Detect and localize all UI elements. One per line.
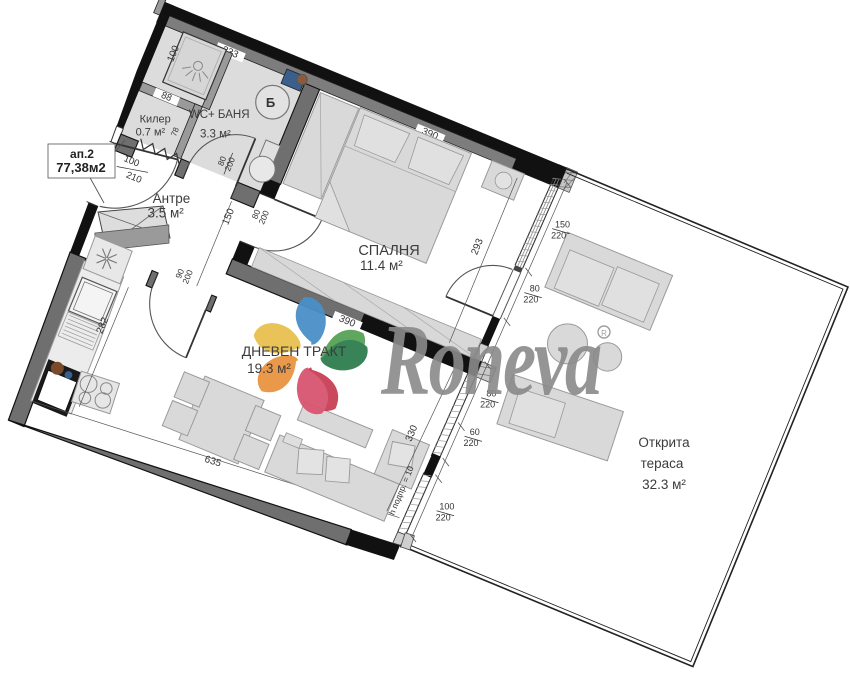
svg-text:ап.2: ап.2 <box>70 147 94 161</box>
svg-text:Б: Б <box>266 95 275 110</box>
svg-text:220: 220 <box>463 438 478 448</box>
svg-text:220: 220 <box>436 512 451 522</box>
svg-text:0.7 м²: 0.7 м² <box>136 127 166 139</box>
svg-text:Килер: Килер <box>140 113 171 125</box>
svg-text:32.3 м²: 32.3 м² <box>642 477 686 492</box>
svg-text:77,38м2: 77,38м2 <box>56 160 105 175</box>
svg-text:СПАЛНЯ: СПАЛНЯ <box>358 243 419 259</box>
svg-text:тераса: тераса <box>641 456 684 471</box>
svg-text:220: 220 <box>551 230 566 240</box>
svg-text:Открита: Открита <box>638 435 690 450</box>
svg-text:220: 220 <box>523 294 538 304</box>
svg-text:R: R <box>601 329 607 338</box>
svg-text:Roneva: Roneva <box>380 304 600 417</box>
svg-text:150: 150 <box>555 219 570 229</box>
svg-text:Антре: Антре <box>153 191 191 206</box>
svg-text:3.3 м²: 3.3 м² <box>200 128 231 140</box>
svg-text:WC+ БАНЯ: WC+ БАНЯ <box>189 109 250 121</box>
svg-text:19.3 м²: 19.3 м² <box>247 361 291 376</box>
svg-text:60: 60 <box>470 427 480 437</box>
svg-text:11.4 м²: 11.4 м² <box>360 258 403 273</box>
svg-text:80: 80 <box>530 283 540 293</box>
svg-text:3.5 м²: 3.5 м² <box>147 205 184 220</box>
svg-text:100: 100 <box>439 501 454 511</box>
svg-text:ДНЕВЕН ТРАКТ: ДНЕВЕН ТРАКТ <box>242 343 347 359</box>
